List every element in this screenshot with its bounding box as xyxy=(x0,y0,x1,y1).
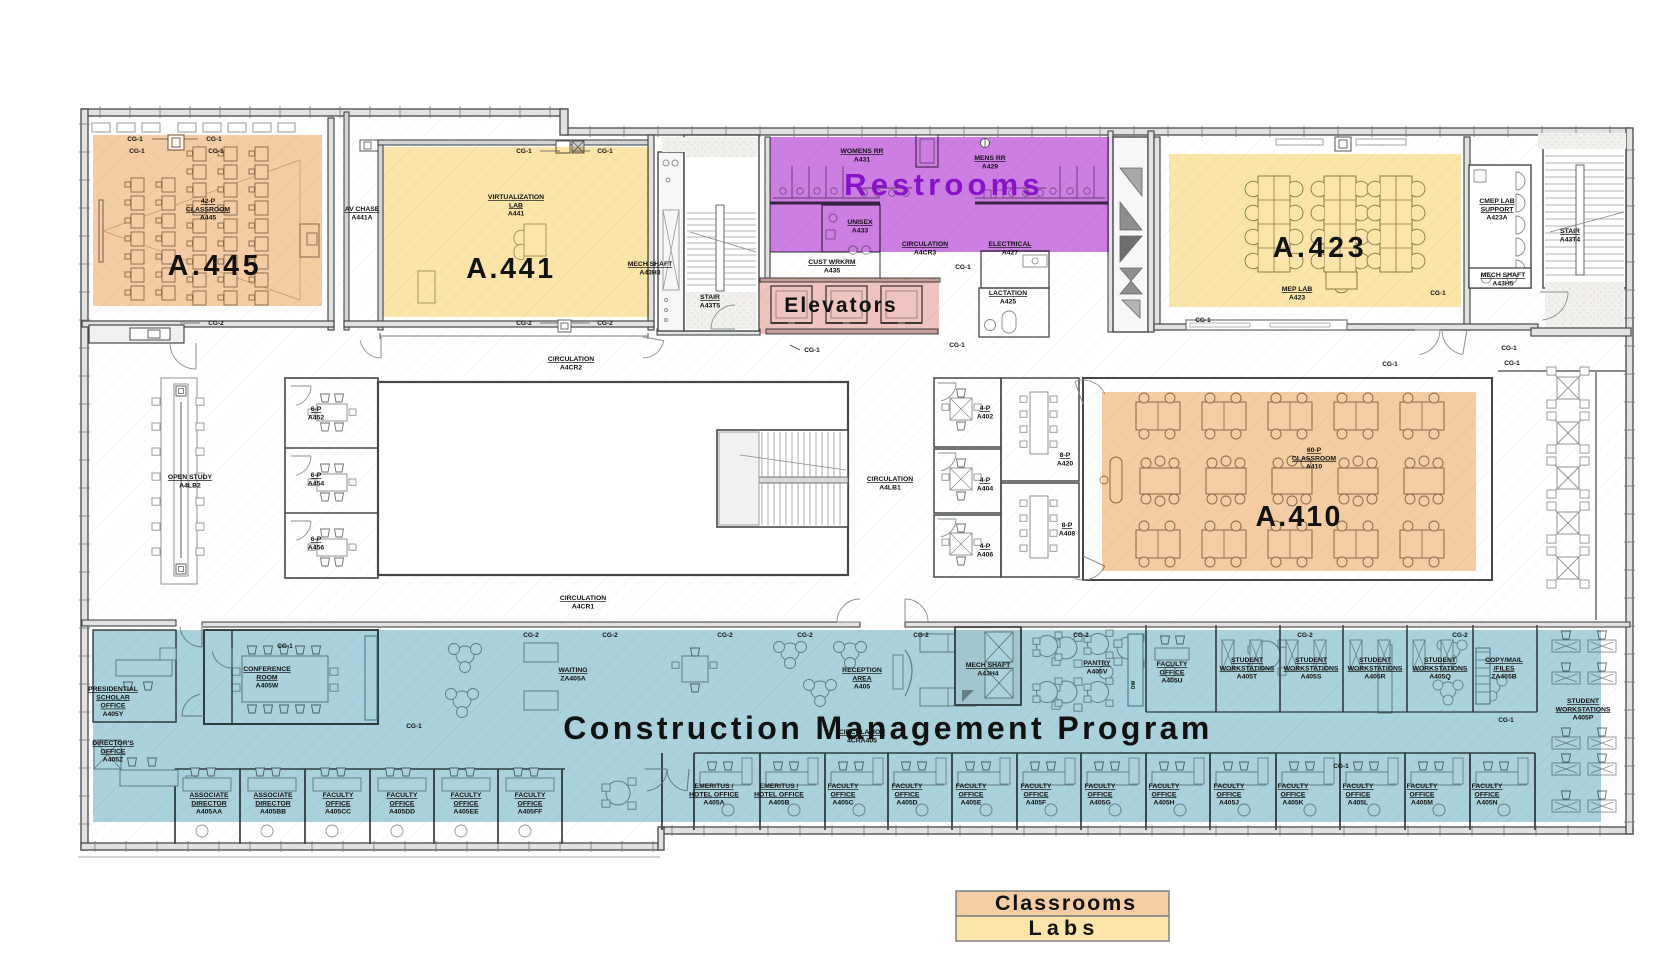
svg-text:A405L: A405L xyxy=(1348,800,1368,807)
svg-text:A405J: A405J xyxy=(1219,800,1239,807)
svg-text:CIRCULATION: CIRCULATION xyxy=(902,241,948,248)
svg-text:STUDENT: STUDENT xyxy=(1567,698,1600,705)
svg-text:A405EE: A405EE xyxy=(453,809,479,816)
svg-text:A.445: A.445 xyxy=(168,250,263,282)
svg-text:ELECTRICAL: ELECTRICAL xyxy=(988,241,1031,248)
svg-text:OFFICE: OFFICE xyxy=(895,791,920,798)
svg-text:A405W: A405W xyxy=(256,683,279,690)
svg-text:PANTRY: PANTRY xyxy=(1083,660,1111,667)
svg-text:HOTEL OFFICE: HOTEL OFFICE xyxy=(689,791,739,798)
svg-text:A441: A441 xyxy=(508,211,524,218)
svg-text:LACTATION: LACTATION xyxy=(989,290,1027,297)
svg-text:FACULTY: FACULTY xyxy=(1343,783,1374,790)
svg-text:ASSOCIATE: ASSOCIATE xyxy=(253,792,293,799)
svg-text:FACULTY: FACULTY xyxy=(515,792,546,799)
svg-text:STAIR: STAIR xyxy=(700,294,720,301)
svg-text:A402: A402 xyxy=(977,413,993,420)
svg-text:8-P: 8-P xyxy=(1060,452,1071,459)
svg-text:FACULTY: FACULTY xyxy=(387,792,418,799)
svg-text:MECH SHAFT: MECH SHAFT xyxy=(628,261,673,268)
svg-text:CG-2: CG-2 xyxy=(1073,632,1089,639)
svg-text:4-P: 4-P xyxy=(980,405,991,412)
svg-text:CG-2: CG-2 xyxy=(597,320,613,327)
svg-text:CG-2: CG-2 xyxy=(913,632,929,639)
svg-text:A405BB: A405BB xyxy=(260,809,286,816)
svg-text:OFFICE: OFFICE xyxy=(1160,669,1185,676)
svg-text:A431: A431 xyxy=(854,156,870,163)
svg-text:A405AA: A405AA xyxy=(196,809,222,816)
svg-text:A435: A435 xyxy=(824,267,840,274)
svg-text:6-P: 6-P xyxy=(311,406,322,413)
svg-text:COPY/MAIL: COPY/MAIL xyxy=(1485,657,1523,664)
svg-text:LAB: LAB xyxy=(509,202,523,209)
svg-text:CG-1: CG-1 xyxy=(1430,290,1446,297)
svg-text:DIRECTOR: DIRECTOR xyxy=(191,800,226,807)
svg-text:WOMENS RR: WOMENS RR xyxy=(840,148,883,155)
svg-text:OFFICE: OFFICE xyxy=(101,703,126,710)
svg-text:FACULTY: FACULTY xyxy=(1021,783,1052,790)
svg-text:CIRCULATION: CIRCULATION xyxy=(560,595,606,602)
svg-text:CG-1: CG-1 xyxy=(1504,360,1520,367)
svg-text:A445: A445 xyxy=(200,215,216,222)
svg-text:A433: A433 xyxy=(852,227,868,234)
svg-text:FACULTY: FACULTY xyxy=(1085,783,1116,790)
svg-text:CG-1: CG-1 xyxy=(277,643,293,650)
svg-text:ZA405B: ZA405B xyxy=(1491,674,1516,681)
svg-text:Elevators: Elevators xyxy=(784,294,897,317)
svg-text:FACULTY: FACULTY xyxy=(892,783,923,790)
svg-text:FACULTY: FACULTY xyxy=(451,792,482,799)
svg-text:A404: A404 xyxy=(977,485,993,492)
svg-text:FACULTY: FACULTY xyxy=(1278,783,1309,790)
svg-text:MEP LAB: MEP LAB xyxy=(1282,286,1313,293)
svg-text:A406: A406 xyxy=(977,551,993,558)
svg-text:A441A: A441A xyxy=(351,214,372,221)
svg-text:A4CR3: A4CR3 xyxy=(914,249,937,256)
svg-text:VIRTUALIZATION: VIRTUALIZATION xyxy=(488,194,544,201)
svg-text:A408: A408 xyxy=(1059,530,1075,537)
svg-text:FACULTY: FACULTY xyxy=(956,783,987,790)
svg-text:OFFICE: OFFICE xyxy=(101,748,126,755)
svg-text:CG-1: CG-1 xyxy=(206,136,222,143)
svg-text:A405Y: A405Y xyxy=(103,711,124,718)
svg-text:CG-1: CG-1 xyxy=(1498,717,1514,724)
svg-text:A4LB1: A4LB1 xyxy=(879,484,901,491)
svg-text:ASSOCIATE: ASSOCIATE xyxy=(189,792,229,799)
svg-text:WORKSTATIONS: WORKSTATIONS xyxy=(1413,665,1468,672)
svg-text:4-P: 4-P xyxy=(980,543,991,550)
svg-text:MENS RR: MENS RR xyxy=(974,155,1005,162)
svg-text:SUPPORT: SUPPORT xyxy=(1481,206,1515,213)
svg-text:STUDENT: STUDENT xyxy=(1359,657,1392,664)
svg-text:42-P: 42-P xyxy=(201,198,216,205)
svg-text:A.410: A.410 xyxy=(1255,501,1342,533)
svg-text:CG-1: CG-1 xyxy=(1501,345,1517,352)
svg-text:PRESIDENTIAL: PRESIDENTIAL xyxy=(88,686,138,693)
svg-text:A405D: A405D xyxy=(896,800,917,807)
svg-text:6-P: 6-P xyxy=(311,472,322,479)
svg-text:A405H: A405H xyxy=(1153,800,1174,807)
svg-text:A405F: A405F xyxy=(1026,800,1046,807)
svg-text:RECEPTION: RECEPTION xyxy=(842,667,882,674)
svg-text:WORKSTATIONS: WORKSTATIONS xyxy=(1556,706,1611,713)
svg-text:OPEN STUDY: OPEN STUDY xyxy=(168,474,213,481)
svg-text:CG-2: CG-2 xyxy=(602,632,618,639)
svg-text:OFFICE: OFFICE xyxy=(1088,791,1113,798)
svg-text:FACULTY: FACULTY xyxy=(323,792,354,799)
svg-text:EMERITUS /: EMERITUS / xyxy=(695,783,734,790)
svg-text:A43T5: A43T5 xyxy=(700,302,721,309)
svg-text:A405A: A405A xyxy=(703,800,724,807)
svg-text:FACULTY: FACULTY xyxy=(1157,661,1188,668)
svg-text:AV CHASE: AV CHASE xyxy=(345,206,380,213)
svg-text:CG-1: CG-1 xyxy=(955,264,971,271)
svg-text:OFFICE: OFFICE xyxy=(1281,791,1306,798)
svg-text:A405Q: A405Q xyxy=(1429,674,1451,681)
svg-text:4-P: 4-P xyxy=(980,477,991,484)
svg-text:WAITING: WAITING xyxy=(558,667,587,674)
svg-text:CIRCULATION: CIRCULATION xyxy=(548,356,594,363)
svg-text:OFFICE: OFFICE xyxy=(1410,791,1435,798)
svg-text:HOTEL OFFICE: HOTEL OFFICE xyxy=(754,791,804,798)
svg-text:Construction Management Progra: Construction Management Program xyxy=(563,710,1212,746)
svg-text:A410: A410 xyxy=(1306,464,1322,471)
svg-text:EMERITUS /: EMERITUS / xyxy=(760,783,799,790)
svg-text:DIRECTOR'S: DIRECTOR'S xyxy=(92,740,134,747)
svg-text:CG-2: CG-2 xyxy=(516,320,532,327)
svg-text:60-P: 60-P xyxy=(1307,447,1322,454)
svg-text:A405N: A405N xyxy=(1476,800,1497,807)
svg-text:OFFICE: OFFICE xyxy=(1152,791,1177,798)
svg-text:MECH SHAFT: MECH SHAFT xyxy=(966,662,1011,669)
svg-text:A405K: A405K xyxy=(1282,800,1303,807)
svg-text:A.423: A.423 xyxy=(1273,232,1368,264)
svg-text:CG-2: CG-2 xyxy=(797,632,813,639)
svg-text:CLASSROOM: CLASSROOM xyxy=(186,206,231,213)
svg-text:FACULTY: FACULTY xyxy=(1149,783,1180,790)
svg-text:A425: A425 xyxy=(1000,298,1016,305)
svg-text:MECH SHAFT: MECH SHAFT xyxy=(1481,272,1526,279)
svg-text:CG-1: CG-1 xyxy=(1382,361,1398,368)
svg-text:A405G: A405G xyxy=(1089,800,1111,807)
svg-text:FACULTY: FACULTY xyxy=(1472,783,1503,790)
svg-text:CIRCULATION: CIRCULATION xyxy=(867,476,913,483)
svg-text:Restrooms: Restrooms xyxy=(844,167,1044,202)
svg-text:A405R: A405R xyxy=(1364,674,1385,681)
svg-text:A405DD: A405DD xyxy=(389,809,415,816)
svg-text:CG-1: CG-1 xyxy=(129,148,145,155)
svg-text:A4LB2: A4LB2 xyxy=(179,482,201,489)
svg-text:SCHOLAR: SCHOLAR xyxy=(96,694,130,701)
svg-text:8-P: 8-P xyxy=(1062,522,1073,529)
svg-text:WORKSTATIONS: WORKSTATIONS xyxy=(1284,665,1339,672)
svg-text:A43T4: A43T4 xyxy=(1560,236,1581,243)
svg-text:Classrooms: Classrooms xyxy=(995,891,1137,915)
svg-text:A4CR1: A4CR1 xyxy=(572,603,595,610)
svg-text:CUST WRKRM: CUST WRKRM xyxy=(808,259,856,266)
svg-text:A454: A454 xyxy=(308,480,324,487)
svg-text:A423A: A423A xyxy=(1486,215,1507,222)
svg-text:A405Z: A405Z xyxy=(103,757,123,764)
svg-text:CG-1: CG-1 xyxy=(406,723,422,730)
svg-text:STUDENT: STUDENT xyxy=(1424,657,1457,664)
svg-text:AREA: AREA xyxy=(852,675,871,682)
svg-text:A405P: A405P xyxy=(1573,715,1594,722)
svg-text:CG-1: CG-1 xyxy=(597,148,613,155)
svg-text:CONFERENCE: CONFERENCE xyxy=(243,666,291,673)
svg-text:A405: A405 xyxy=(854,684,870,691)
svg-text:A.441: A.441 xyxy=(466,253,556,285)
svg-text:WORKSTATIONS: WORKSTATIONS xyxy=(1348,665,1403,672)
svg-text:STAIR: STAIR xyxy=(1560,228,1580,235)
svg-text:A405S: A405S xyxy=(1301,674,1322,681)
svg-text:A405T: A405T xyxy=(1237,674,1258,681)
svg-text:OFFICE: OFFICE xyxy=(959,791,984,798)
svg-text:CG-1: CG-1 xyxy=(516,148,532,155)
svg-text:ROOM: ROOM xyxy=(256,674,277,681)
svg-text:ZA405A: ZA405A xyxy=(560,675,585,682)
svg-text:UNISEX: UNISEX xyxy=(847,219,873,226)
svg-text:CG-1: CG-1 xyxy=(1333,763,1349,770)
svg-text:Labs: Labs xyxy=(1029,916,1100,940)
svg-text:/FILES: /FILES xyxy=(1493,665,1515,672)
svg-text:FACULTY: FACULTY xyxy=(1214,783,1245,790)
svg-text:FACULTY: FACULTY xyxy=(828,783,859,790)
svg-text:OFFICE: OFFICE xyxy=(1475,791,1500,798)
svg-text:OFFICE: OFFICE xyxy=(1346,791,1371,798)
svg-text:A43H3: A43H3 xyxy=(639,269,660,276)
svg-text:OFFICE: OFFICE xyxy=(326,800,351,807)
svg-text:A452: A452 xyxy=(308,414,324,421)
svg-text:OFFICE: OFFICE xyxy=(390,800,415,807)
svg-text:OFFICE: OFFICE xyxy=(831,791,856,798)
svg-text:A405U: A405U xyxy=(1161,678,1182,685)
svg-text:CG-1: CG-1 xyxy=(949,342,965,349)
svg-text:CLASSROOM: CLASSROOM xyxy=(1292,455,1337,462)
svg-text:CG-1: CG-1 xyxy=(804,347,820,354)
svg-text:CG-1: CG-1 xyxy=(208,148,224,155)
svg-text:A405V: A405V xyxy=(1087,668,1108,675)
svg-text:CG-1: CG-1 xyxy=(127,136,143,143)
svg-text:CG-2: CG-2 xyxy=(1452,632,1468,639)
svg-text:A43H4: A43H4 xyxy=(977,670,998,677)
svg-text:A405M: A405M xyxy=(1411,800,1433,807)
svg-text:A405E: A405E xyxy=(961,800,982,807)
svg-text:A43H5: A43H5 xyxy=(1492,280,1513,287)
svg-text:WORKSTATIONS: WORKSTATIONS xyxy=(1220,665,1275,672)
svg-text:OFFICE: OFFICE xyxy=(1024,791,1049,798)
svg-text:CG-2: CG-2 xyxy=(717,632,733,639)
svg-text:6-P: 6-P xyxy=(311,536,322,543)
svg-text:OFFICE: OFFICE xyxy=(1217,791,1242,798)
svg-text:A420: A420 xyxy=(1057,460,1073,467)
svg-text:A456: A456 xyxy=(308,544,324,551)
svg-text:CMEP LAB: CMEP LAB xyxy=(1479,198,1514,205)
svg-text:A423: A423 xyxy=(1289,294,1305,301)
svg-text:CG-2: CG-2 xyxy=(208,320,224,327)
svg-text:A405B: A405B xyxy=(768,800,789,807)
svg-text:DIRECTOR: DIRECTOR xyxy=(255,800,290,807)
svg-text:STUDENT: STUDENT xyxy=(1231,657,1264,664)
svg-text:CG-1: CG-1 xyxy=(1195,317,1211,324)
svg-text:A405CC: A405CC xyxy=(325,809,351,816)
svg-text:OFFICE: OFFICE xyxy=(518,800,543,807)
svg-text:A427: A427 xyxy=(1002,249,1018,256)
svg-text:A405FF: A405FF xyxy=(518,809,543,816)
svg-text:CG-2: CG-2 xyxy=(523,632,539,639)
svg-text:A405C: A405C xyxy=(832,800,853,807)
svg-text:CG-2: CG-2 xyxy=(1297,632,1313,639)
svg-text:A4CR2: A4CR2 xyxy=(560,364,583,371)
svg-text:OFFICE: OFFICE xyxy=(454,800,479,807)
svg-text:STUDENT: STUDENT xyxy=(1295,657,1328,664)
svg-text:FACULTY: FACULTY xyxy=(1407,783,1438,790)
